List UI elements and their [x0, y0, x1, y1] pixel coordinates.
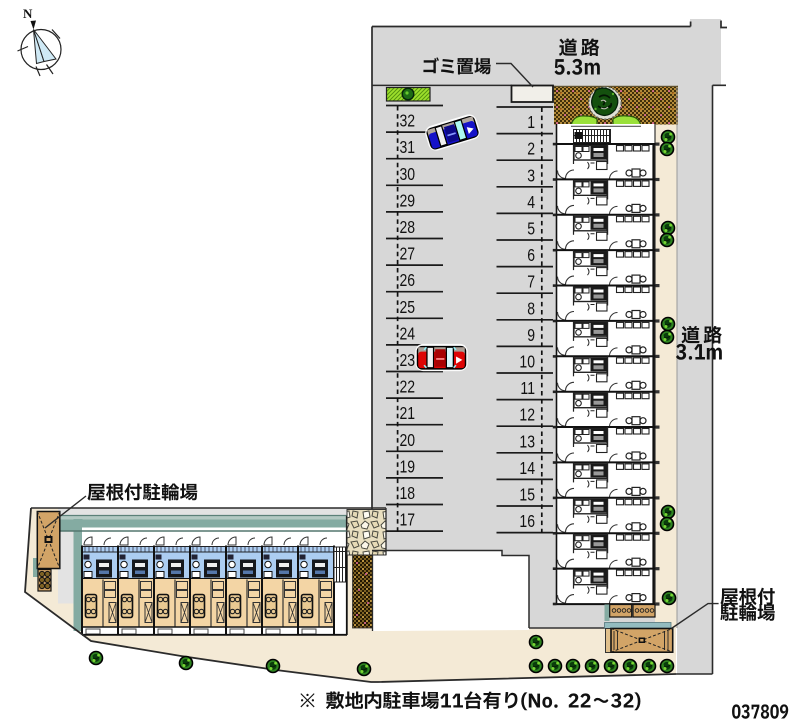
svg-text:27: 27: [400, 244, 416, 264]
svg-text:32: 32: [400, 111, 416, 131]
svg-text:15: 15: [519, 485, 535, 505]
svg-text:26: 26: [400, 271, 416, 291]
svg-text:2: 2: [527, 139, 535, 159]
svg-text:1: 1: [527, 112, 535, 132]
svg-text:31: 31: [400, 138, 416, 158]
svg-text:22: 22: [400, 377, 416, 397]
svg-text:3: 3: [527, 166, 535, 186]
svg-text:14: 14: [519, 458, 535, 478]
svg-text:10: 10: [519, 352, 535, 372]
svg-text:N: N: [23, 6, 33, 21]
svg-text:6: 6: [527, 245, 535, 265]
svg-text:20: 20: [400, 430, 416, 450]
svg-text:18: 18: [400, 483, 416, 503]
svg-text:5: 5: [527, 219, 535, 239]
svg-text:25: 25: [400, 297, 416, 317]
svg-text:4: 4: [527, 192, 535, 212]
svg-text:11: 11: [520, 378, 535, 398]
svg-text:30: 30: [400, 164, 416, 184]
svg-text:29: 29: [400, 191, 416, 211]
svg-text:12: 12: [519, 405, 535, 425]
svg-text:9: 9: [527, 325, 535, 345]
svg-text:19: 19: [400, 457, 416, 477]
svg-text:21: 21: [400, 404, 416, 424]
svg-text:16: 16: [519, 511, 535, 531]
svg-text:13: 13: [519, 432, 535, 452]
svg-text:23: 23: [400, 350, 416, 370]
svg-text:24: 24: [400, 324, 416, 344]
svg-text:28: 28: [400, 217, 416, 237]
svg-text:8: 8: [527, 299, 535, 319]
svg-text:7: 7: [527, 272, 535, 292]
svg-text:17: 17: [400, 510, 416, 530]
